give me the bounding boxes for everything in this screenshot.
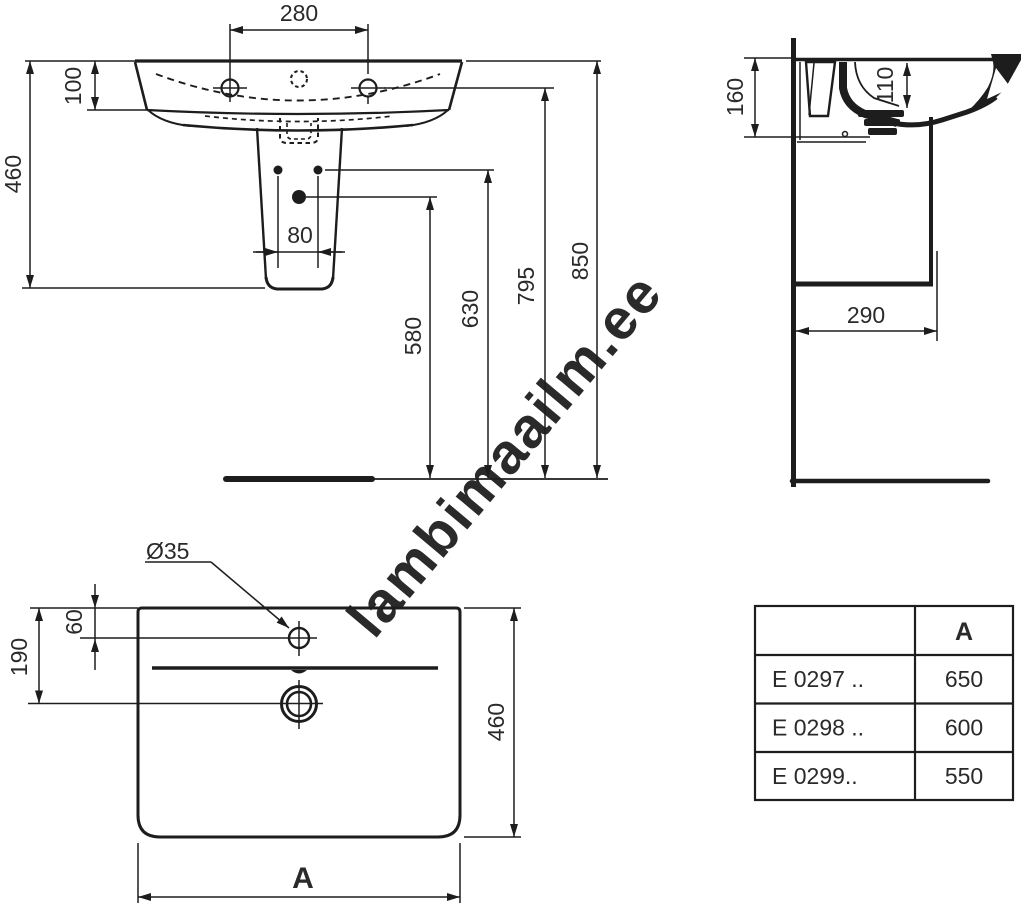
dim-underside-height-label: 795	[513, 267, 539, 305]
watermark-text: lambimaailm.ee	[335, 261, 675, 649]
dim-wall-to-overflow-label: 160	[722, 78, 748, 116]
top-view: Ø35 60 190 460 A	[6, 538, 521, 903]
dim-depth-label: 460	[483, 703, 509, 741]
dim-drain-height-label: 580	[400, 317, 426, 355]
spec-table: A E 0297 .. 650 E 0298 .. 600 E 0299.. 5…	[755, 606, 1013, 800]
dim-rim-to-tap-label: 60	[61, 609, 87, 635]
plan-drain	[282, 680, 317, 729]
basin-front-outline	[135, 61, 462, 131]
dim-tap-spacing-label: 280	[280, 0, 318, 26]
dim-fixing-height-label: 630	[457, 290, 483, 328]
trap-section-2	[864, 119, 900, 126]
table-cell-code: E 0299..	[772, 763, 858, 789]
table-cell-value: 550	[945, 763, 983, 789]
plan-extension-lines	[28, 608, 521, 903]
bowl-underside-curve	[183, 125, 413, 131]
dim-wall-to-fixing-label: 290	[847, 302, 885, 328]
technical-drawing-page: lambimaailm.ee	[0, 0, 1024, 904]
front-tap-holes	[213, 71, 385, 97]
semi-pedestal-side-profile	[806, 62, 835, 116]
table-cell-value: 650	[945, 666, 983, 692]
fixing-hole-left	[274, 166, 283, 175]
fixing-hole-right	[314, 166, 323, 175]
table-cell-code: E 0298 ..	[772, 715, 864, 741]
side-view: 160 110 290	[722, 38, 1021, 487]
table-cell-code: E 0297 ..	[772, 666, 864, 692]
tap-hole-center-dashed	[291, 71, 307, 87]
dim-rim-depth-label: 100	[60, 67, 86, 105]
semi-pedestal-front	[257, 118, 342, 289]
dim-rim-to-drain-label: 190	[6, 638, 32, 676]
front-extension-lines	[22, 24, 601, 288]
small-drain-dot	[843, 132, 848, 137]
dim-height-with-pedestal-label: 460	[0, 155, 26, 193]
dim-rim-height-label: 850	[567, 242, 593, 280]
drain-hole-front	[292, 190, 306, 204]
plan-dimension-lines	[39, 562, 514, 897]
table-header-a: A	[955, 618, 973, 646]
table-cell-value: 600	[945, 715, 983, 741]
dim-tap-diameter-label: Ø35	[146, 538, 189, 564]
trap-section-3	[868, 128, 897, 135]
trap-section-1	[858, 110, 904, 117]
tap-diameter-leader	[211, 562, 289, 628]
dim-inner-depth-label: 110	[872, 67, 898, 104]
dim-width-a-label: A	[292, 862, 314, 895]
dim-fixing-spacing-label: 80	[287, 222, 313, 248]
washbasin-dimension-drawing: lambimaailm.ee	[0, 0, 1024, 904]
